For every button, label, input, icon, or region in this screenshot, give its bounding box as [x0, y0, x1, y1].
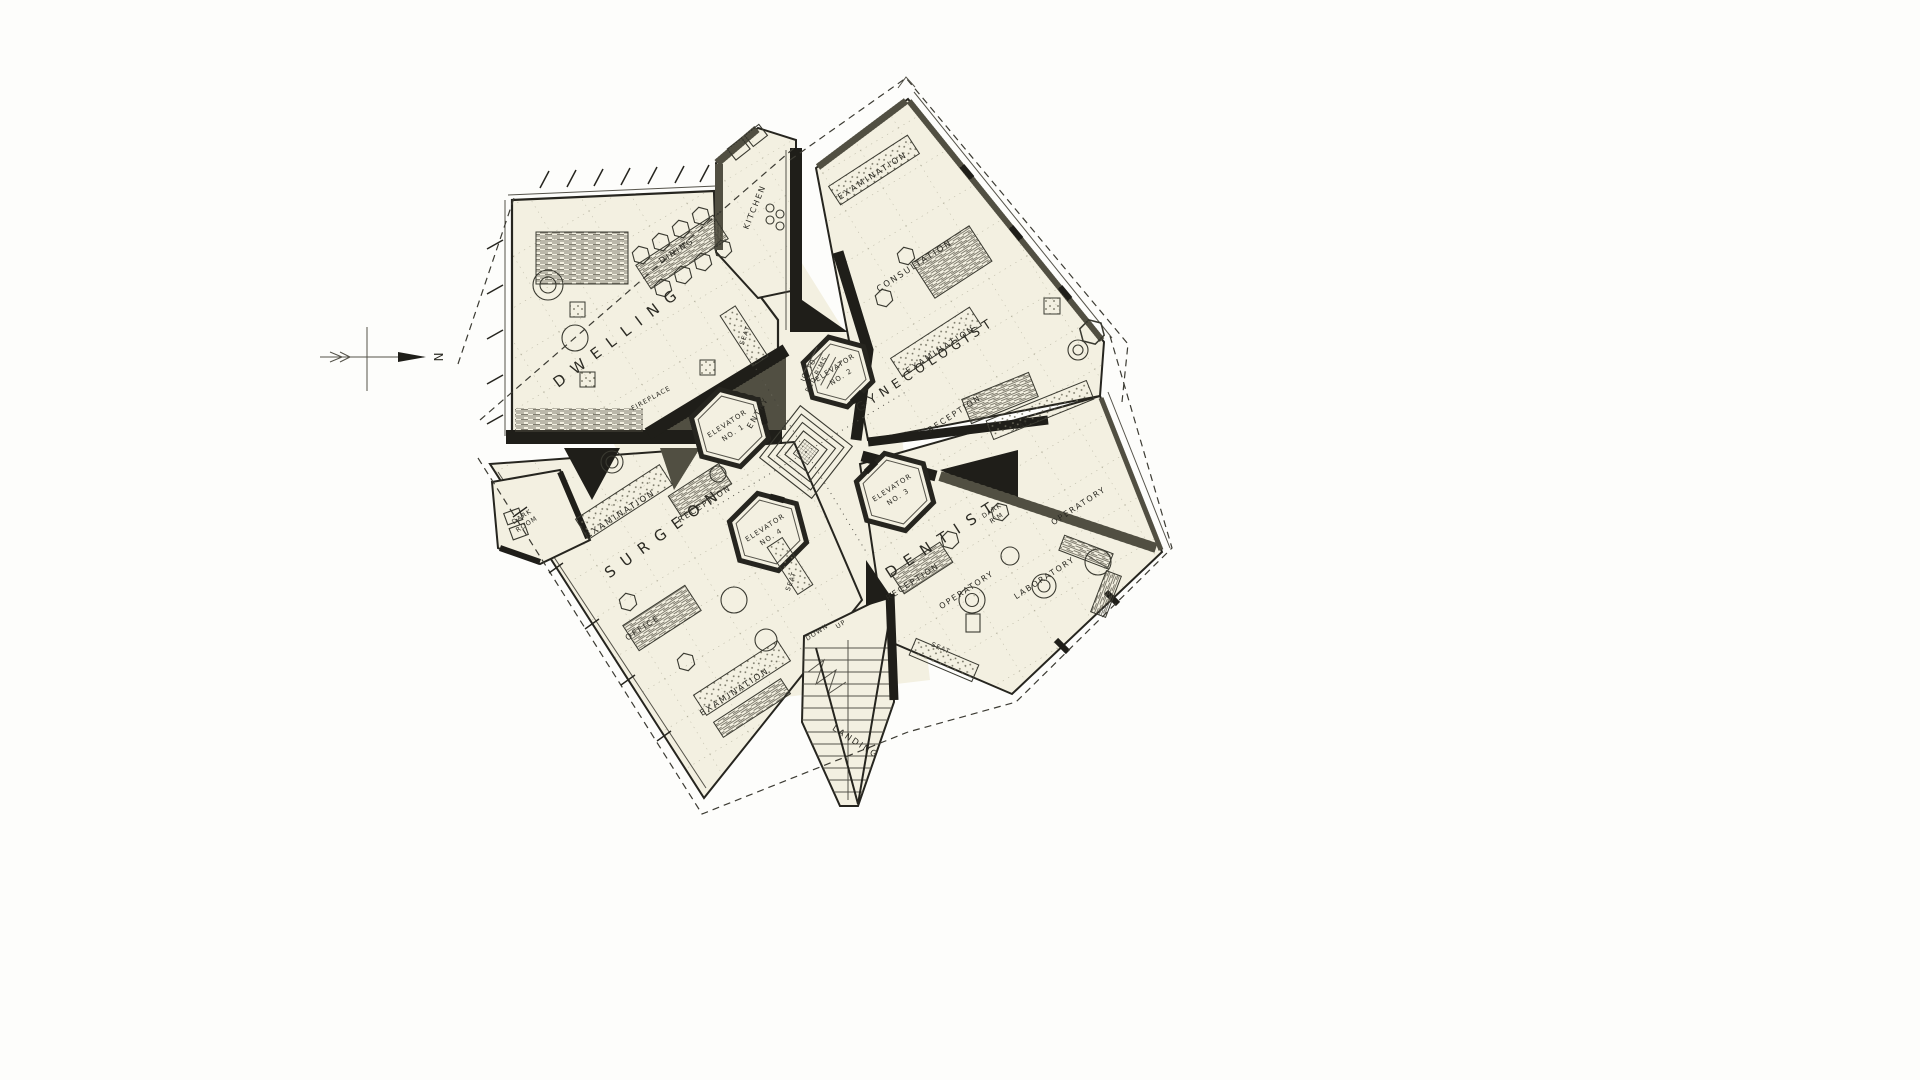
- floor-plan-drawing: N DWELLING DINING KITCHEN FIREPLACE SEAT…: [0, 0, 1920, 1080]
- compass-north-label: N: [431, 353, 445, 362]
- north-compass: N: [320, 327, 445, 391]
- compass-arrowhead: [398, 352, 426, 362]
